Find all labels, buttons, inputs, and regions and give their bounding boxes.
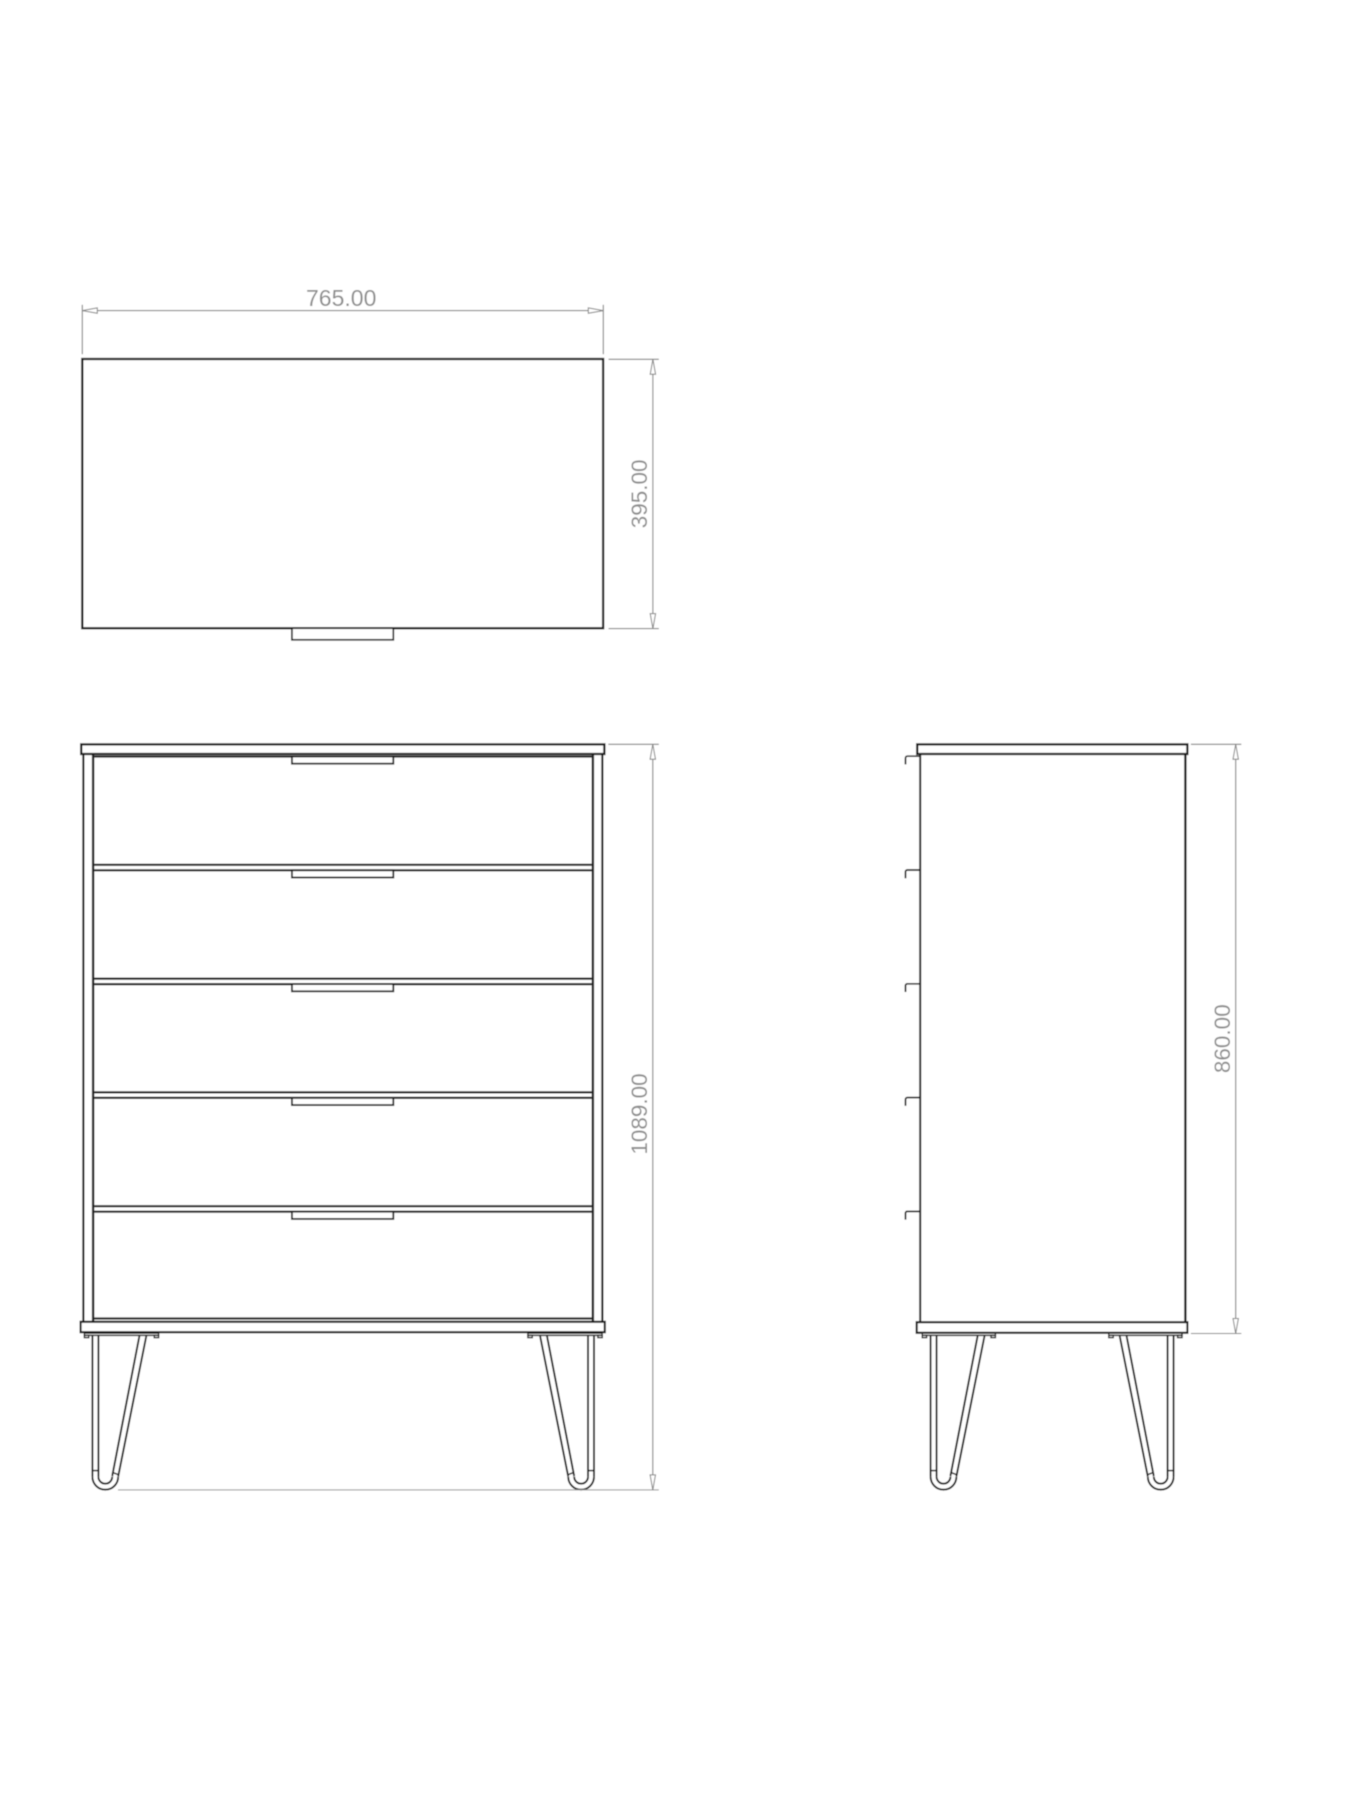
svg-text:395.00: 395.00 [627,459,652,528]
svg-text:765.00: 765.00 [306,285,376,311]
svg-text:860.00: 860.00 [1210,1004,1235,1073]
svg-text:1089.00: 1089.00 [627,1073,652,1154]
